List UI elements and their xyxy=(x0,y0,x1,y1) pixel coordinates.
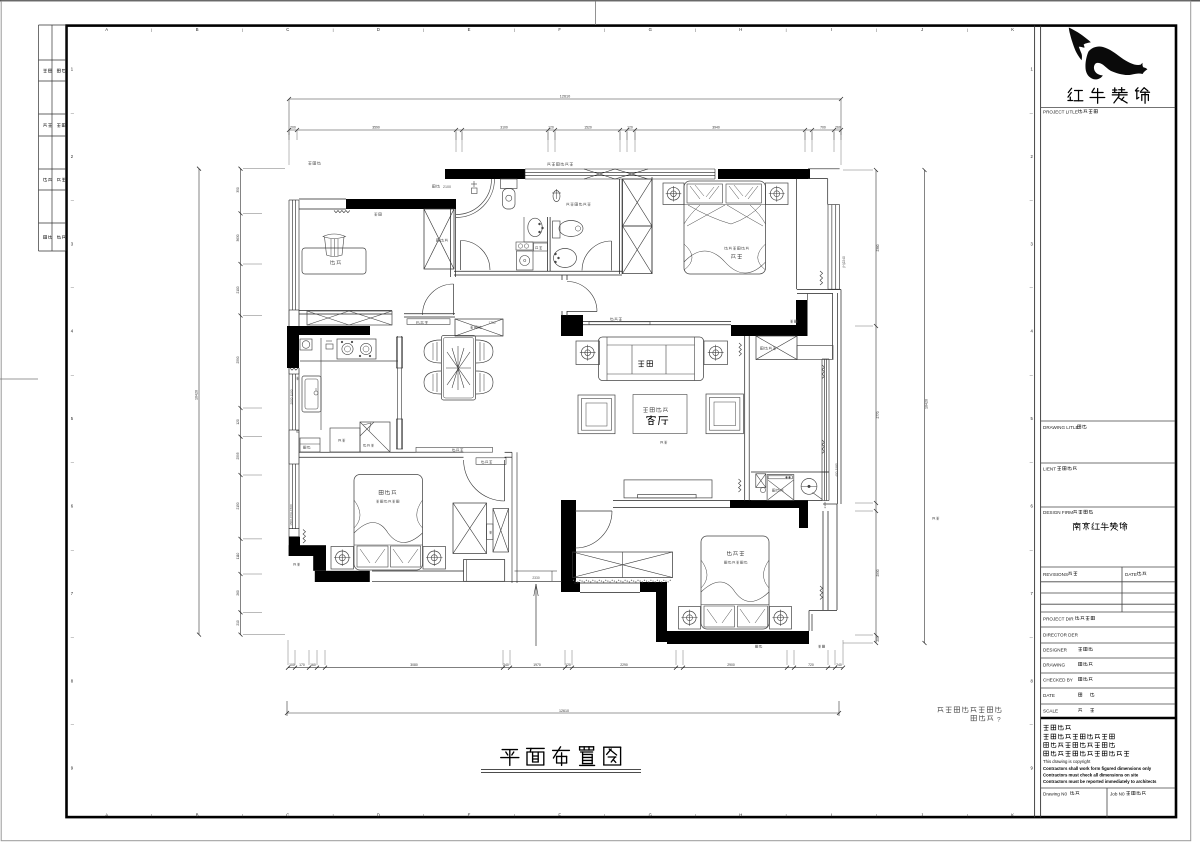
svg-text:|: | xyxy=(695,28,696,32)
svg-text:|: | xyxy=(423,28,424,32)
svg-text:3: 3 xyxy=(1030,241,1033,246)
svg-text:700: 700 xyxy=(820,125,826,129)
svg-text:2590: 2590 xyxy=(236,356,240,363)
svg-text:260: 260 xyxy=(835,125,841,129)
svg-text:—: — xyxy=(1030,111,1034,115)
svg-text:5: 5 xyxy=(1030,416,1033,421)
svg-text:C: C xyxy=(286,812,289,817)
svg-text:400-1985: 400-1985 xyxy=(835,463,839,477)
svg-text:H: H xyxy=(739,812,742,817)
svg-text:2290: 2290 xyxy=(620,663,628,667)
svg-text:2380: 2380 xyxy=(876,244,880,251)
svg-text:|: | xyxy=(242,28,243,32)
svg-text:|: | xyxy=(695,813,696,817)
svg-text:—: — xyxy=(71,461,75,465)
svg-text:2100: 2100 xyxy=(443,185,451,189)
svg-text:1970: 1970 xyxy=(533,663,541,667)
svg-text:3080: 3080 xyxy=(410,663,418,667)
svg-text:1520: 1520 xyxy=(584,125,592,129)
svg-text:LIENT: LIENT xyxy=(1043,467,1056,472)
svg-text:C: C xyxy=(286,27,289,32)
svg-text:1500-C0H-1500: 1500-C0H-1500 xyxy=(289,504,293,526)
svg-text:|: | xyxy=(514,813,515,817)
svg-text:210: 210 xyxy=(236,620,240,626)
svg-text:2595: 2595 xyxy=(236,452,240,459)
svg-text:|: | xyxy=(333,813,334,817)
svg-text:2150: 2150 xyxy=(236,502,240,509)
svg-text:1110: 1110 xyxy=(236,552,240,559)
svg-text:J: J xyxy=(921,27,923,32)
svg-text:I: I xyxy=(831,812,832,817)
svg-text:—: — xyxy=(1030,286,1034,290)
svg-text:K: K xyxy=(1011,812,1014,817)
svg-text:SCALE: SCALE xyxy=(1043,708,1058,713)
svg-text:3630: 3630 xyxy=(236,234,240,241)
svg-text:2330: 2330 xyxy=(532,576,540,580)
svg-text:7: 7 xyxy=(1030,591,1033,596)
svg-text:2900: 2900 xyxy=(727,663,735,667)
svg-text:E: E xyxy=(468,812,471,817)
svg-text:120: 120 xyxy=(236,419,240,425)
svg-text:|: | xyxy=(967,813,968,817)
svg-text:—: — xyxy=(71,548,75,552)
svg-text:DRAWING: DRAWING xyxy=(1043,662,1065,667)
svg-text:K: K xyxy=(1011,27,1014,32)
svg-text:A: A xyxy=(105,27,108,32)
svg-text:2770: 2770 xyxy=(876,411,880,418)
svg-text:1700: 1700 xyxy=(488,321,495,325)
svg-text:—: — xyxy=(71,373,75,377)
svg-text:Contractors must check all dim: Contractors must check all dimensions on… xyxy=(1043,772,1139,777)
svg-text:120: 120 xyxy=(627,125,633,129)
svg-text:8: 8 xyxy=(1030,678,1033,683)
svg-text:6: 6 xyxy=(71,504,74,509)
svg-text:(H)2240: (H)2240 xyxy=(842,256,846,268)
svg-text:240: 240 xyxy=(836,663,842,667)
svg-text:|: | xyxy=(604,28,605,32)
svg-text:?: ? xyxy=(997,717,1001,724)
svg-text:E: E xyxy=(468,27,471,32)
svg-text:DATE: DATE xyxy=(1043,693,1055,698)
svg-text:3940: 3940 xyxy=(712,125,720,129)
svg-text:B: B xyxy=(196,27,199,32)
svg-text:PROJECT LITLE: PROJECT LITLE xyxy=(1043,110,1078,115)
svg-text:Job N0: Job N0 xyxy=(1110,791,1125,796)
svg-text:|: | xyxy=(151,28,152,32)
svg-text:|: | xyxy=(242,813,243,817)
svg-text:F: F xyxy=(558,27,561,32)
svg-text:350: 350 xyxy=(236,187,240,193)
svg-text:I: I xyxy=(831,27,832,32)
svg-text:DATE: DATE xyxy=(1125,572,1137,577)
svg-text:4: 4 xyxy=(71,329,74,334)
svg-text:160: 160 xyxy=(310,663,316,667)
svg-text:—: — xyxy=(1030,198,1034,202)
svg-text:DRAWING LITLE: DRAWING LITLE xyxy=(1043,425,1079,430)
svg-text:8: 8 xyxy=(71,678,74,683)
svg-text:—: — xyxy=(71,723,75,727)
svg-text:D: D xyxy=(377,812,380,817)
svg-text:200: 200 xyxy=(290,125,296,129)
svg-text:|: | xyxy=(786,28,787,32)
svg-text:3: 3 xyxy=(71,241,74,246)
svg-text:120: 120 xyxy=(565,663,571,667)
svg-text:120: 120 xyxy=(548,125,554,129)
svg-text:—: — xyxy=(71,198,75,202)
svg-text:REVISIONS: REVISIONS xyxy=(1043,572,1068,577)
svg-text:—: — xyxy=(1030,723,1034,727)
svg-text:2100: 2100 xyxy=(236,286,240,293)
svg-text:2390: 2390 xyxy=(823,501,827,508)
svg-text:|: | xyxy=(423,813,424,817)
svg-text:|: | xyxy=(333,28,334,32)
svg-text:5: 5 xyxy=(71,416,74,421)
svg-text:—: — xyxy=(1030,635,1034,639)
svg-text:2930: 2930 xyxy=(876,569,880,576)
svg-text:7: 7 xyxy=(71,591,74,596)
svg-text:G: G xyxy=(649,812,652,817)
svg-text:DESIGNER: DESIGNER xyxy=(1043,647,1068,652)
svg-text:1: 1 xyxy=(1030,67,1033,72)
svg-text:B: B xyxy=(196,812,199,817)
svg-text:Drawing N0: Drawing N0 xyxy=(1043,791,1067,796)
svg-text:|: | xyxy=(786,813,787,817)
svg-text:200: 200 xyxy=(876,636,880,642)
svg-text:9: 9 xyxy=(1030,766,1033,771)
svg-text:CHECKED BY: CHECKED BY xyxy=(1043,677,1073,682)
svg-text:—: — xyxy=(1030,373,1034,377)
svg-text:Contractors must be reported i: Contractors must be reported immediately… xyxy=(1043,779,1157,784)
svg-text:DESIGN FIRM: DESIGN FIRM xyxy=(1043,510,1073,515)
svg-text:2: 2 xyxy=(1030,154,1033,159)
svg-text:3590: 3590 xyxy=(372,125,380,129)
svg-text:|: | xyxy=(876,28,877,32)
svg-text:12610: 12610 xyxy=(560,94,571,98)
svg-text:D: D xyxy=(377,27,380,32)
svg-text:H: H xyxy=(739,27,742,32)
svg-text:|: | xyxy=(151,813,152,817)
svg-text:3100: 3100 xyxy=(500,125,508,129)
svg-text:240: 240 xyxy=(503,663,509,667)
svg-text:4: 4 xyxy=(1030,329,1033,334)
svg-text:—: — xyxy=(71,111,75,115)
svg-text:—: — xyxy=(1030,548,1034,552)
svg-text:—: — xyxy=(71,286,75,290)
svg-text:260: 260 xyxy=(236,590,240,596)
svg-text:—: — xyxy=(71,635,75,639)
svg-text:170: 170 xyxy=(299,663,305,667)
svg-text:|: | xyxy=(514,28,515,32)
svg-text:720: 720 xyxy=(808,663,814,667)
svg-text:J: J xyxy=(921,812,923,817)
svg-text:This drawing is copyright: This drawing is copyright xyxy=(1043,759,1091,764)
svg-text:A: A xyxy=(105,812,108,817)
svg-text:6: 6 xyxy=(1030,504,1033,509)
svg-text:|: | xyxy=(967,28,968,32)
svg-text:—: — xyxy=(1030,461,1034,465)
svg-text:12610: 12610 xyxy=(559,709,569,713)
svg-text:|: | xyxy=(604,813,605,817)
svg-text:10420: 10420 xyxy=(925,399,929,409)
svg-text:2: 2 xyxy=(71,154,74,159)
svg-text:9: 9 xyxy=(71,766,74,771)
svg-text:100: 100 xyxy=(289,663,295,667)
svg-text:G: G xyxy=(649,27,652,32)
svg-text:1: 1 xyxy=(71,67,74,72)
svg-text:2000-1100: 2000-1100 xyxy=(290,389,294,404)
svg-text:DIRECTOR DER: DIRECTOR DER xyxy=(1043,632,1079,637)
svg-text:Contractors shall work form fi: Contractors shall work form figured dime… xyxy=(1043,766,1152,771)
svg-text:10420: 10420 xyxy=(194,390,198,400)
svg-text:F: F xyxy=(558,812,561,817)
svg-text:PROJECT DIR: PROJECT DIR xyxy=(1043,616,1074,621)
svg-text:|: | xyxy=(876,813,877,817)
